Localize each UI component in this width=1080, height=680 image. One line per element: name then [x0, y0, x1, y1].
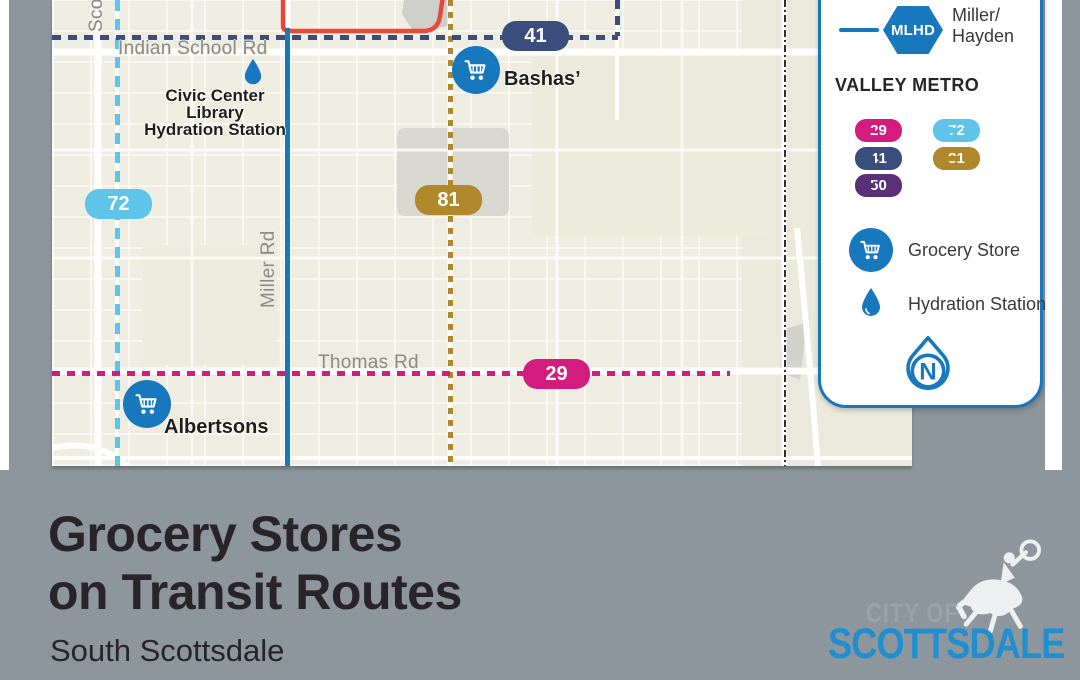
right-gray-band: [1062, 0, 1080, 478]
legend-route-50: 50: [855, 174, 902, 197]
mlhd-badge: MLHD: [883, 6, 943, 54]
logo-scottsdale-text: SCOTTSDALE: [828, 620, 1064, 669]
street-label-scottsdale: Scottsdale Rd: [86, 0, 108, 32]
north-arrow-icon: N: [901, 336, 955, 394]
route-50-dash: [855, 183, 881, 188]
hydration-station-label: Civic Center Library Hydration Station: [140, 87, 290, 138]
route-81-dash: [933, 156, 975, 161]
route-badge-41: 41: [502, 21, 569, 51]
route-41-dash: [855, 156, 881, 161]
legend-grocery-icon: [849, 228, 893, 272]
street-label-indian-school: Indian School Rd: [118, 38, 268, 60]
route-29-dash: [855, 128, 881, 133]
hydration-station-icon: [242, 58, 264, 87]
route-badge-72: 72: [85, 189, 152, 219]
city-of-scottsdale-logo: CITY OF SCOTTSDALE: [828, 538, 1053, 673]
bronco-horse-icon: [946, 538, 1046, 633]
grocery-store-icon-bashas: [452, 46, 500, 94]
flyer: Indian School Rd Thomas Rd Miller Rd Sco…: [0, 0, 1080, 680]
route-badge-81: 81: [415, 185, 482, 215]
albertsons-label: Albertsons: [164, 416, 268, 439]
north-letter: N: [919, 359, 936, 386]
legend-panel: MLHD Miller/ Hayden VALLEY METRO 29 72 4…: [818, 0, 1043, 408]
legend-route-72: 72: [933, 119, 980, 142]
legend-route-81: 81: [933, 147, 980, 170]
valley-metro-heading: VALLEY METRO: [835, 75, 979, 96]
mlhd-line-sample: [839, 28, 879, 32]
legend-hydration-label: Hydration Station: [908, 294, 1046, 315]
shopping-cart-icon: [462, 56, 490, 84]
shopping-cart-icon: [133, 390, 161, 418]
legend-grocery-label: Grocery Store: [908, 240, 1020, 261]
legend-hydration-icon: [859, 287, 883, 319]
route-72-line: [115, 0, 120, 466]
street-label-thomas: Thomas Rd: [318, 352, 419, 374]
page-subtitle: South Scottsdale: [50, 633, 284, 669]
page-title: Grocery Stores on Transit Routes: [48, 505, 462, 621]
route-72-dash: [933, 128, 975, 133]
street-label-miller: Miller Rd: [258, 208, 280, 308]
route-badge-29: 29: [523, 359, 590, 389]
shopping-cart-icon: [858, 237, 884, 263]
route-41-line-north: [615, 0, 620, 36]
map: Indian School Rd Thomas Rd Miller Rd Sco…: [52, 0, 912, 466]
bashas-label: Bashas’: [504, 68, 581, 91]
legend-route-41: 41: [855, 147, 902, 170]
boundary-line: [784, 0, 786, 466]
legend-route-29: 29: [855, 119, 902, 142]
